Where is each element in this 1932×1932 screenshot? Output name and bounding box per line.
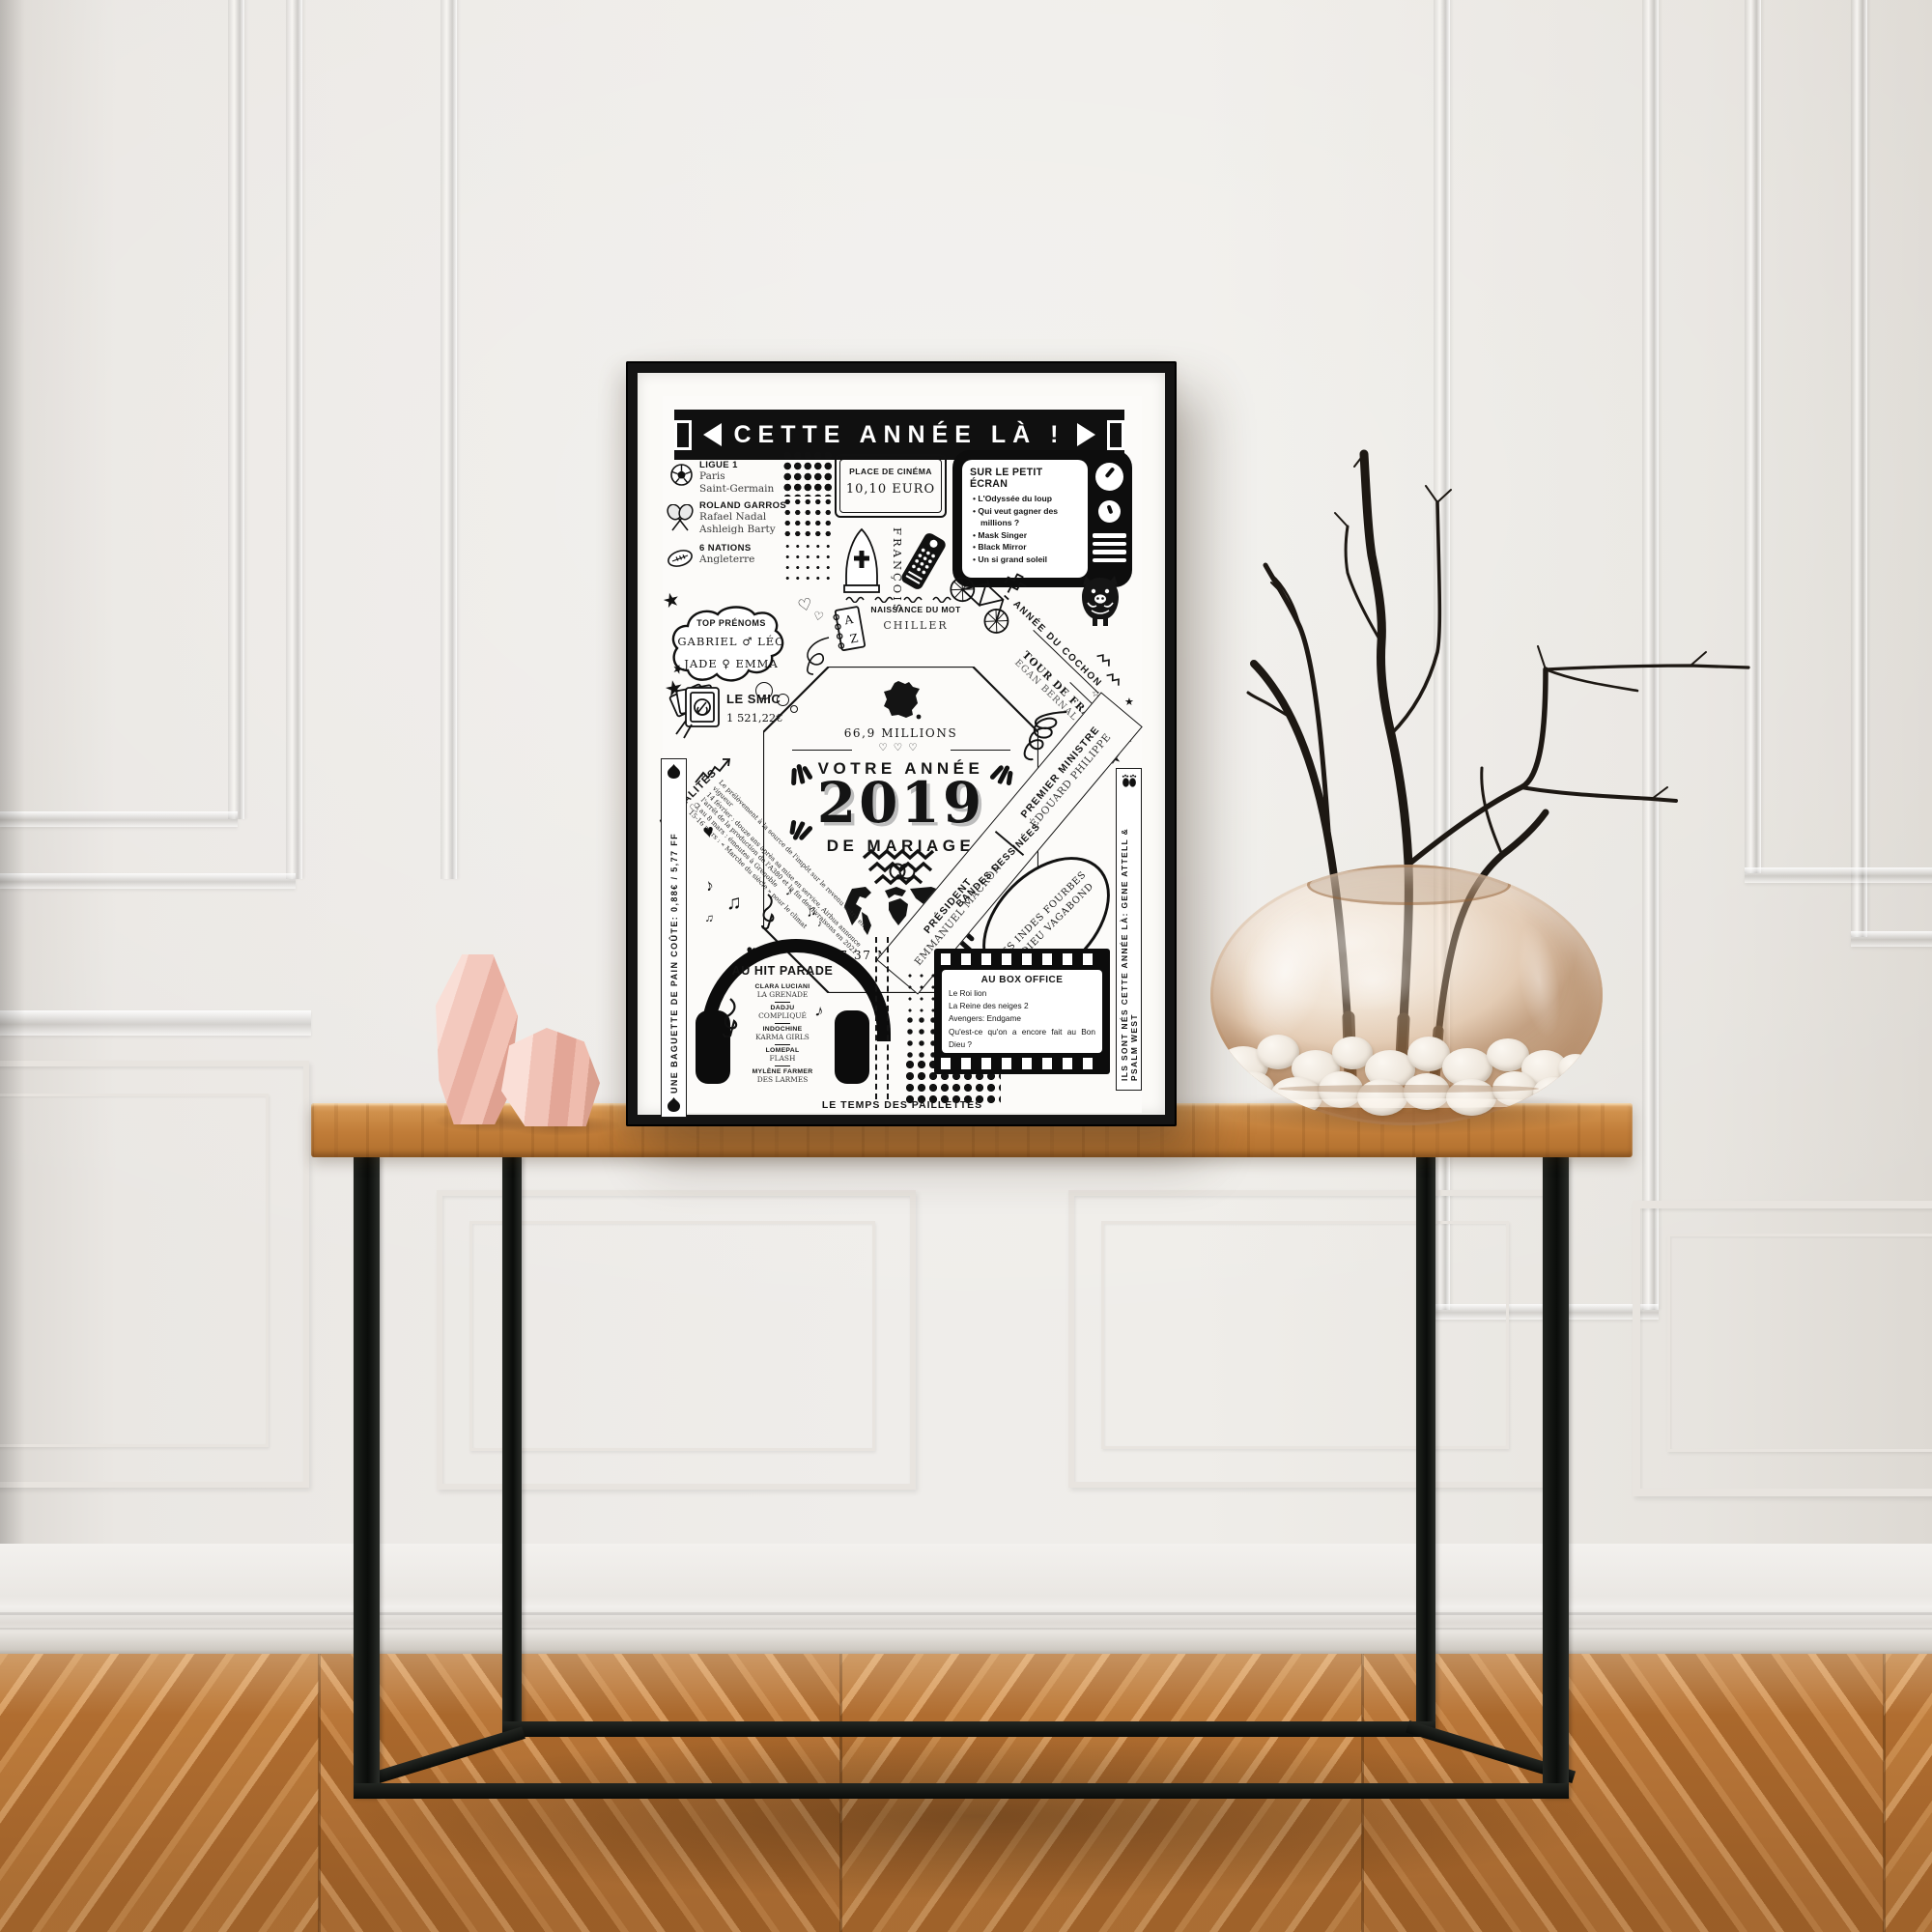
tv-item: • Qui veut gagner des millions ? — [970, 505, 1082, 529]
room-scene-photo: { "palette":{ "wall":"#ece9e5","floor":"… — [0, 0, 1932, 1932]
roland-title: ROLAND GARROS — [699, 500, 786, 511]
left-banner: UNE BAGUETTE DE PAIN COÛTE: 0,88€ / 5,77… — [661, 758, 687, 1118]
wainscot-panel-inner — [0, 1094, 269, 1447]
film-square-icon — [1107, 420, 1124, 450]
prenoms-title: TOP PRÉNOMS — [667, 618, 796, 628]
tv-title: SUR LE PETIT ÉCRAN — [970, 467, 1082, 490]
glass-base-ring — [1249, 1098, 1568, 1108]
hit-parade-list: CLARA LUCIANI LA GRENADE DADJU COMPLIQUÉ… — [728, 983, 837, 1084]
wainscot-panel-inner — [469, 1221, 875, 1451]
poster-cette-annee-la: CETTE ANNÉE LÀ ! LIGUE 1 Paris Saint-Ger… — [663, 396, 1142, 1113]
naissance-block: NAISSANCE DU MOT CHILLER — [866, 605, 966, 632]
ligue1-title: LIGUE 1 — [699, 460, 774, 470]
roland-line: Ashleigh Barty — [699, 524, 786, 536]
hit-artist: CLARA LUCIANI — [728, 983, 837, 990]
poster-footer: LE TEMPS DES PAILLETTES — [786, 1099, 1018, 1111]
tv-item: • Black Mirror — [970, 541, 1082, 554]
tilde-row-doodle — [844, 595, 958, 603]
box-office-panel: AU BOX OFFICE Le Roi lion La Reine des n… — [942, 970, 1102, 1053]
table-back-leg — [1416, 1157, 1435, 1737]
tv-knob-icon — [1098, 500, 1121, 523]
table-shadow — [319, 1729, 1633, 1903]
hit-song: LA GRENADE — [728, 990, 837, 999]
wall-molding — [440, 0, 457, 879]
pebble — [1270, 1077, 1322, 1116]
wainscot-panel-inner — [1101, 1221, 1509, 1449]
box-office-filmstrip: AU BOX OFFICE Le Roi lion La Reine des n… — [934, 949, 1110, 1074]
hit-song: FLASH — [728, 1054, 837, 1063]
nations-title: 6 NATIONS — [699, 543, 754, 554]
money-icon — [668, 678, 724, 742]
table-back-leg — [502, 1157, 522, 1737]
tv-item: • Un si grand soleil — [970, 554, 1082, 566]
treble-clef-icon — [719, 997, 742, 1037]
tv-screen: SUR LE PETIT ÉCRAN • L'Odyssée du loup •… — [962, 460, 1088, 578]
france-population: 66,9 MILLIONS — [763, 726, 1038, 740]
wall-molding — [0, 873, 296, 889]
glass-bowl-vase — [1210, 865, 1603, 1125]
smic-value: 1 521,22€ — [726, 711, 783, 724]
box-office-item: La Reine des neiges 2 — [949, 1000, 1095, 1012]
film-sprockets — [941, 1058, 1103, 1069]
wall-molding — [0, 811, 238, 827]
glass-highlight — [1510, 920, 1568, 1040]
wall-corner-shade — [0, 0, 25, 1654]
soccer-ball-icon — [670, 464, 693, 486]
music-note-icon: ♫ — [704, 911, 715, 923]
prenoms-boys: GABRIEL ♂ LÉO — [667, 635, 796, 648]
hit-artist: INDOCHINE — [728, 1026, 837, 1033]
remote-control-icon — [899, 531, 948, 591]
rewind-triangle-icon — [703, 423, 722, 446]
rugby-ball-icon — [667, 549, 694, 568]
baby-feet-icon — [1122, 774, 1137, 787]
hit-song: KARMA GIRLS — [728, 1033, 837, 1041]
smic-title: LE SMIC — [726, 692, 781, 706]
pope-mitre-icon — [837, 526, 887, 603]
separator-line — [951, 750, 1010, 751]
leaf-icon — [668, 1097, 680, 1112]
nations-line: Angleterre — [699, 554, 754, 566]
baseboard — [0, 1544, 1932, 1654]
tennis-rackets-icon — [665, 504, 696, 533]
heart-outline-icon: ♡ — [812, 610, 825, 623]
roland-garros-block: ROLAND GARROS Rafael Nadal Ashleigh Bart… — [699, 500, 786, 536]
box-office-item: Le Roi lion — [949, 987, 1095, 1000]
notepad-az-icon: A Z — [829, 605, 867, 654]
six-nations-block: 6 NATIONS Angleterre — [699, 543, 754, 566]
france-map-icon — [883, 680, 922, 721]
zigzag-doodle — [1094, 650, 1114, 668]
headphone-cup-icon — [835, 1010, 869, 1084]
box-office-item: Qu'est-ce qu'on a encore fait au Bon Die… — [949, 1026, 1095, 1051]
roland-line: Rafael Nadal — [699, 511, 786, 524]
tv-speaker-icon — [1093, 533, 1126, 562]
hit-parade-title: AU HIT PARADE — [724, 964, 840, 978]
window-reflection — [1326, 950, 1419, 1011]
leaf-icon — [668, 764, 680, 779]
dashed-line — [887, 937, 889, 1099]
ligue1-line: Saint-Germain — [699, 483, 774, 496]
separator-line — [792, 750, 852, 751]
vase-opening-rim — [1307, 865, 1511, 905]
film-square-icon — [674, 420, 692, 450]
pope-name: FRANÇOIS — [891, 527, 904, 605]
music-note-icon: ♪ — [817, 920, 822, 929]
pig-icon — [1078, 570, 1122, 628]
music-note-icon: ♫ — [805, 903, 818, 920]
naissance-word: CHILLER — [866, 619, 966, 632]
wall-molding — [228, 0, 244, 819]
box-office-item: Avengers: Endgame — [949, 1012, 1095, 1025]
wainscot-panel-inner — [1667, 1234, 1932, 1452]
table-back-rail — [502, 1721, 1435, 1737]
tv-knob-icon — [1095, 463, 1123, 491]
treble-clef-icon — [757, 893, 779, 929]
dashed-line — [875, 937, 877, 1099]
music-note-icon: ♫ — [726, 893, 742, 913]
right-banner: ILS SONT NÉS CETTE ANNÉE LÀ: GENE ATTELL… — [1116, 768, 1142, 1091]
hit-artist: LOMEPAL — [728, 1047, 837, 1054]
table-front-leg — [354, 1157, 380, 1799]
star-icon: ★ — [1124, 697, 1134, 708]
wall-molding — [1851, 931, 1932, 947]
ligue1-line: Paris — [699, 470, 774, 483]
wall-molding — [1851, 0, 1867, 937]
poster-title: CETTE ANNÉE LÀ ! — [733, 421, 1065, 449]
halftone-dots — [782, 450, 833, 580]
right-banner-text: ILS SONT NÉS CETTE ANNÉE LÀ: GENE ATTELL… — [1120, 791, 1139, 1081]
box-office-title: AU BOX OFFICE — [949, 975, 1095, 985]
naissance-title: NAISSANCE DU MOT — [866, 605, 966, 614]
zigzag-doodle — [1104, 669, 1123, 688]
table-front-leg — [1543, 1157, 1569, 1799]
hit-song: DES LARMES — [728, 1075, 837, 1084]
hearts-row: ♡♡♡ — [763, 742, 1038, 753]
hit-artist: MYLÈNE FARMER — [728, 1068, 837, 1075]
left-banner-text: UNE BAGUETTE DE PAIN COÛTE: 0,88€ / 5,77… — [669, 782, 679, 1094]
play-triangle-icon — [1077, 423, 1095, 446]
zigzag-rows-doodle — [862, 848, 939, 887]
cinema-ticket: PLACE DE CINÉMA 10,10 EURO — [835, 454, 947, 518]
heart-outline-icon: ♡ — [796, 595, 814, 614]
table-front-rail — [354, 1783, 1569, 1799]
tv-item: • L'Odyssée du loup — [970, 493, 1082, 505]
ligue1-block: LIGUE 1 Paris Saint-Germain — [699, 460, 774, 496]
wall-molding — [286, 0, 302, 879]
dado-rail — [0, 1010, 311, 1036]
tv-item: • Mask Singer — [970, 529, 1082, 542]
film-sprockets — [941, 953, 1103, 965]
glass-base-ring — [1278, 1085, 1539, 1093]
